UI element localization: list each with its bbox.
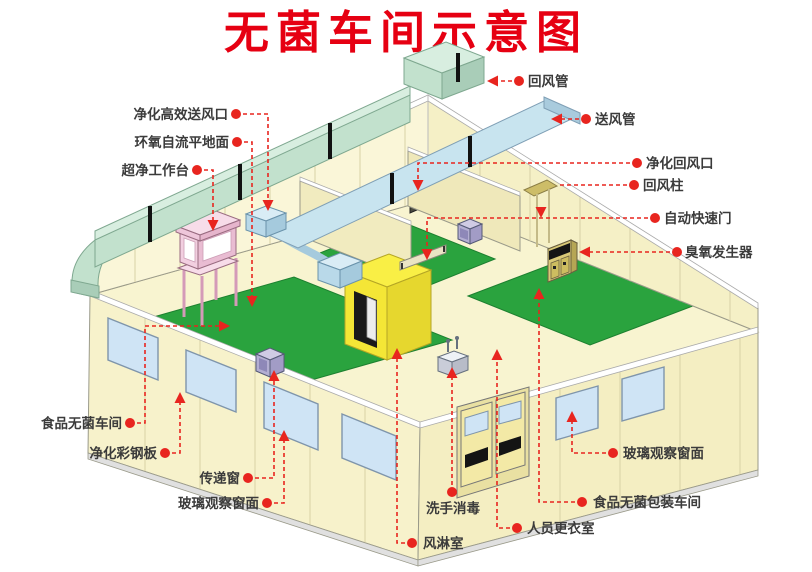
label-clean-workbench: 超净工作台 (121, 162, 190, 179)
label-staff-changing-room: 人员更衣室 (527, 520, 595, 537)
wall-pass-box (458, 219, 482, 244)
leader-dot (243, 473, 253, 483)
label-purify-return-air-outlet: 净化回风口 (646, 155, 714, 172)
label-glass-window-right: 玻璃观察窗面 (623, 445, 704, 462)
leader-dot (632, 158, 642, 168)
leader-dot (160, 448, 170, 458)
label-return-air-duct: 回风管 (528, 73, 569, 90)
leader-dot (514, 76, 524, 86)
leader-dot (512, 523, 522, 533)
label-hepa-supply-outlet: 净化高效送风口 (134, 106, 229, 123)
label-food-packaging-workshop: 食品无菌包装车间 (593, 494, 701, 511)
label-ozone-generator: 臭氧发生器 (685, 244, 753, 261)
building-illustration: 无菌车间示意图 (0, 0, 812, 572)
label-glass-window-left: 玻璃观察窗面 (178, 495, 259, 512)
leader-dot (672, 247, 682, 257)
cleanroom-schematic-page: { "title": { "text": "无菌车间示意图" }, "callo… (0, 0, 812, 572)
label-hand-wash-disinfect: 洗手消毒 (426, 500, 480, 517)
leader-dot (608, 448, 618, 458)
label-pass-window: 传递窗 (199, 470, 241, 487)
leader-dot (125, 418, 135, 428)
leader-dot (581, 114, 591, 124)
leader-dot (650, 213, 660, 223)
label-clean-steel-panel: 净化彩钢板 (90, 445, 158, 462)
label-epoxy-floor: 环氧自流平地面 (135, 134, 230, 151)
pass-window-box (256, 348, 284, 377)
leader-dot (231, 109, 241, 119)
leader-dot (629, 180, 639, 190)
label-air-shower: 风淋室 (423, 535, 464, 552)
leader-dot (407, 538, 417, 548)
label-supply-air-duct: 送风管 (594, 111, 636, 128)
leader-dot (192, 165, 202, 175)
leader-dot (447, 487, 457, 497)
arrow-left-icon (487, 76, 498, 87)
leader-dot (232, 137, 242, 147)
leader-dot (262, 498, 272, 508)
label-return-air-column: 回风柱 (643, 177, 684, 194)
label-food-sterile-workshop: 食品无菌车间 (41, 415, 122, 432)
page-title: 无菌车间示意图 (224, 6, 588, 59)
leader-dot (577, 497, 587, 507)
label-auto-quick-door: 自动快速门 (664, 210, 732, 227)
